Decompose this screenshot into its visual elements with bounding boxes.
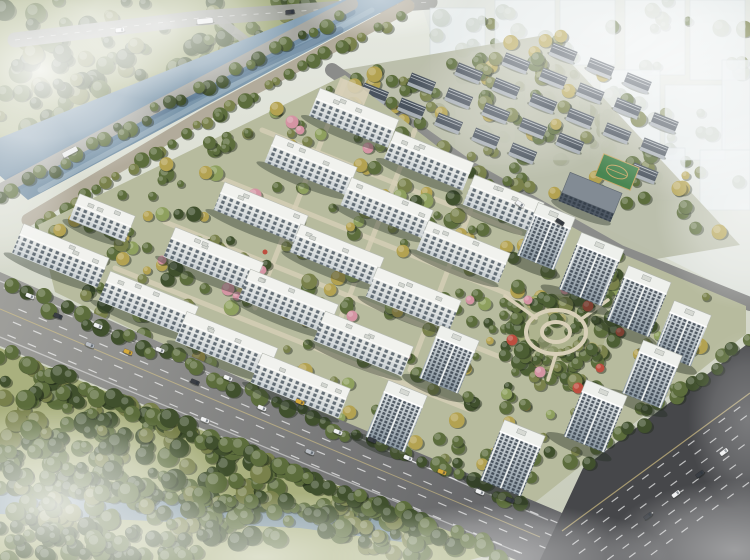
red-art-sculpture [263, 250, 268, 255]
art-piece [263, 250, 268, 255]
aerial-rendering-image [0, 0, 750, 560]
scene-svg [0, 0, 750, 560]
